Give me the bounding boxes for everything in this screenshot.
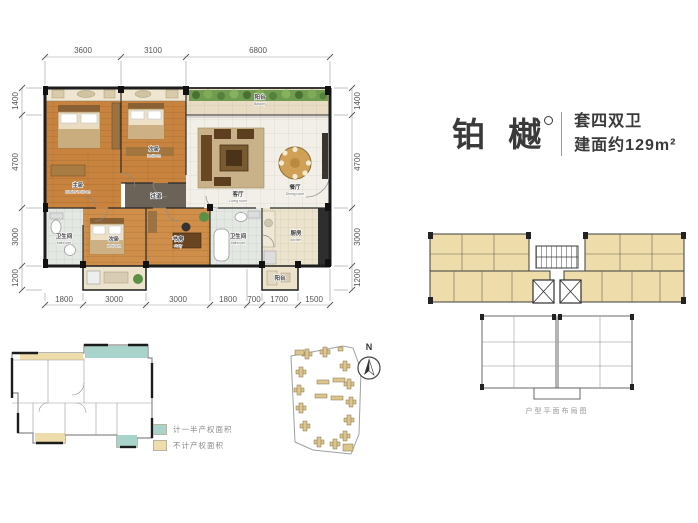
spec-line: 套四双卫 [574,110,676,134]
label-balcony: 阳台 [254,93,266,101]
svg-text:bedroom: bedroom [107,244,121,248]
svg-text:3600: 3600 [74,46,92,55]
svg-text:1400: 1400 [11,92,20,110]
title-block: 铂 樾 套四双卫 建面约129m² [452,110,676,158]
main-floorplan: 主卧 Master bedroom 次卧 bedroom 客厅 Living r… [8,35,393,320]
svg-text:4700: 4700 [353,153,362,171]
svg-text:1200: 1200 [353,269,362,287]
svg-text:4700: 4700 [11,153,20,171]
label-kitchen: 厨房 [290,229,302,237]
legend-item-half-area: 计一半产权面积 [153,424,233,435]
legend-item-no-area: 不计产权面积 [153,440,233,451]
svg-text:N: N [366,342,373,352]
svg-text:1200: 1200 [11,269,20,287]
svg-text:1400: 1400 [353,92,362,110]
half-area-balcony [85,346,147,358]
property-area-plan [8,343,160,461]
label-living: 客厅 [231,190,244,198]
project-name: 铂 樾 [452,118,553,151]
label-bath1: 卫生间 [56,232,73,240]
svg-text:6800: 6800 [249,46,267,55]
svg-text:bedroom: bedroom [147,154,161,158]
label-hallway: 过道 [150,192,162,200]
svg-text:1500: 1500 [305,295,323,304]
label-dining: 餐厅 [288,183,301,191]
svg-text:3000: 3000 [105,295,123,304]
unit-spec: 套四双卫 建面约129m² [574,110,676,158]
label-study: 书房 [172,235,184,243]
trademark-icon [544,116,553,125]
half-area-small [117,435,137,447]
area-line: 建面约129m² [574,134,676,158]
svg-text:Living room: Living room [229,199,247,203]
svg-text:Dining room: Dining room [286,192,304,196]
svg-text:bathroom: bathroom [231,241,245,245]
svg-text:study: study [174,244,182,248]
svg-text:1700: 1700 [270,295,288,304]
building-key-plan [424,222,690,404]
label-bed2: 次卧 [148,145,160,153]
svg-text:3000: 3000 [169,295,187,304]
legend-swatch-tan [153,440,167,451]
svg-text:1800: 1800 [55,295,73,304]
floorplan-page: 主卧 Master bedroom 次卧 bedroom 客厅 Living r… [0,0,698,523]
svg-text:Balcony: Balcony [254,102,266,106]
label-balcony2: 阳台 [274,274,286,282]
label-bath2: 卫生间 [230,232,247,240]
svg-text:3000: 3000 [11,228,20,246]
key-plan-caption: 户型平面布局图 [424,406,690,416]
label-master: 主卧 [72,181,84,189]
legend: 计一半产权面积 不计产权面积 [153,424,233,451]
svg-text:bathroom: bathroom [57,241,71,245]
legend-swatch-teal [153,424,167,435]
svg-text:Master bedroom: Master bedroom [66,190,91,194]
title-divider [561,112,562,156]
svg-text:3000: 3000 [353,228,362,246]
svg-text:3100: 3100 [144,46,162,55]
label-bed3: 次卧 [108,235,120,243]
svg-text:kitchen: kitchen [291,238,302,242]
north-arrow-icon: N [352,340,386,386]
svg-text:700: 700 [247,295,261,304]
svg-text:1800: 1800 [219,295,237,304]
noarea-balcony [35,433,65,443]
